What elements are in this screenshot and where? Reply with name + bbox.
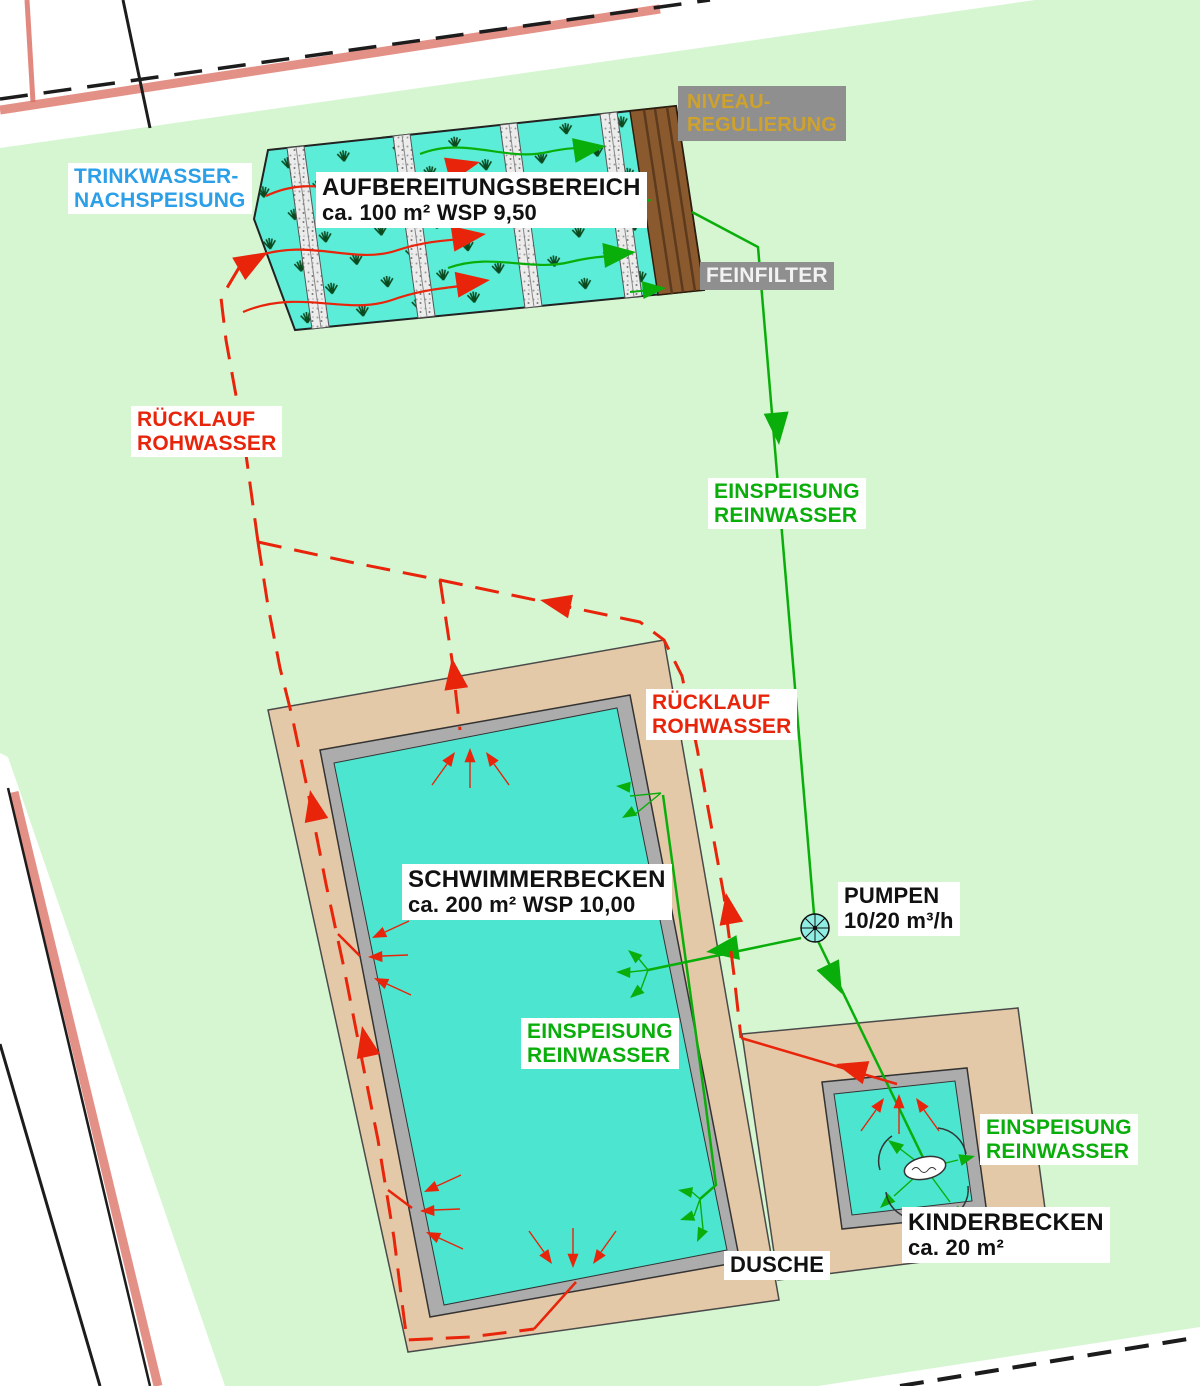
label-title: SCHWIMMERBECKEN [408, 866, 666, 893]
label-aufbereitungsbereich: AUFBEREITUNGSBEREICH ca. 100 m² WSP 9,50 [316, 172, 647, 228]
label-feinfilter: FEINFILTER [700, 262, 834, 290]
kinder-pool-water [834, 1081, 972, 1215]
label-line: ROHWASSER [137, 432, 276, 456]
label-niveau-regulierung: NIVEAU- REGULIERUNG [678, 86, 846, 141]
pump-icon [801, 914, 829, 942]
label-line: NACHSPEISUNG [74, 189, 246, 213]
label-line: DUSCHE [730, 1253, 824, 1278]
label-line: ROHWASSER [652, 715, 791, 739]
label-line: REINWASSER [986, 1140, 1132, 1164]
label-einspeisung-reinwasser-mitte: EINSPEISUNG REINWASSER [521, 1018, 679, 1069]
label-line: EINSPEISUNG [714, 480, 860, 504]
label-line: REGULIERUNG [687, 114, 837, 137]
label-subtitle: ca. 200 m² WSP 10,00 [408, 893, 666, 918]
label-trinkwasser-nachspeisung: TRINKWASSER- NACHSPEISUNG [68, 163, 252, 214]
label-line: NIVEAU- [687, 91, 837, 114]
label-title: KINDERBECKEN [908, 1209, 1104, 1236]
label-line: EINSPEISUNG [986, 1116, 1132, 1140]
kinderbecken-pool [822, 1068, 987, 1229]
label-ruecklauf-rohwasser-oben: RÜCKLAUF ROHWASSER [131, 406, 282, 457]
label-line: REINWASSER [714, 504, 860, 528]
label-line: EINSPEISUNG [527, 1020, 673, 1044]
label-line: RÜCKLAUF [652, 691, 791, 715]
label-pumpen: PUMPEN 10/20 m³/h [838, 882, 960, 936]
label-title: AUFBEREITUNGSBEREICH [322, 174, 641, 201]
label-subtitle: ca. 20 m² [908, 1236, 1104, 1261]
label-subtitle: ca. 100 m² WSP 9,50 [322, 201, 641, 226]
label-line: FEINFILTER [706, 264, 828, 288]
label-ruecklauf-rohwasser-rechts: RÜCKLAUF ROHWASSER [646, 689, 797, 740]
label-line: RÜCKLAUF [137, 408, 276, 432]
label-einspeisung-reinwasser-kinder: EINSPEISUNG REINWASSER [980, 1114, 1138, 1165]
label-line: REINWASSER [527, 1044, 673, 1068]
label-einspeisung-reinwasser-oben: EINSPEISUNG REINWASSER [708, 478, 866, 529]
label-schwimmerbecken: SCHWIMMERBECKEN ca. 200 m² WSP 10,00 [402, 864, 672, 920]
label-subtitle: 10/20 m³/h [844, 909, 954, 934]
natural-pool-site-plan: TRINKWASSER- NACHSPEISUNG AUFBEREITUNGSB… [0, 0, 1200, 1386]
label-title: PUMPEN [844, 884, 954, 909]
label-line: TRINKWASSER- [74, 165, 246, 189]
label-kinderbecken: KINDERBECKEN ca. 20 m² [902, 1207, 1110, 1263]
label-dusche: DUSCHE [724, 1251, 830, 1280]
